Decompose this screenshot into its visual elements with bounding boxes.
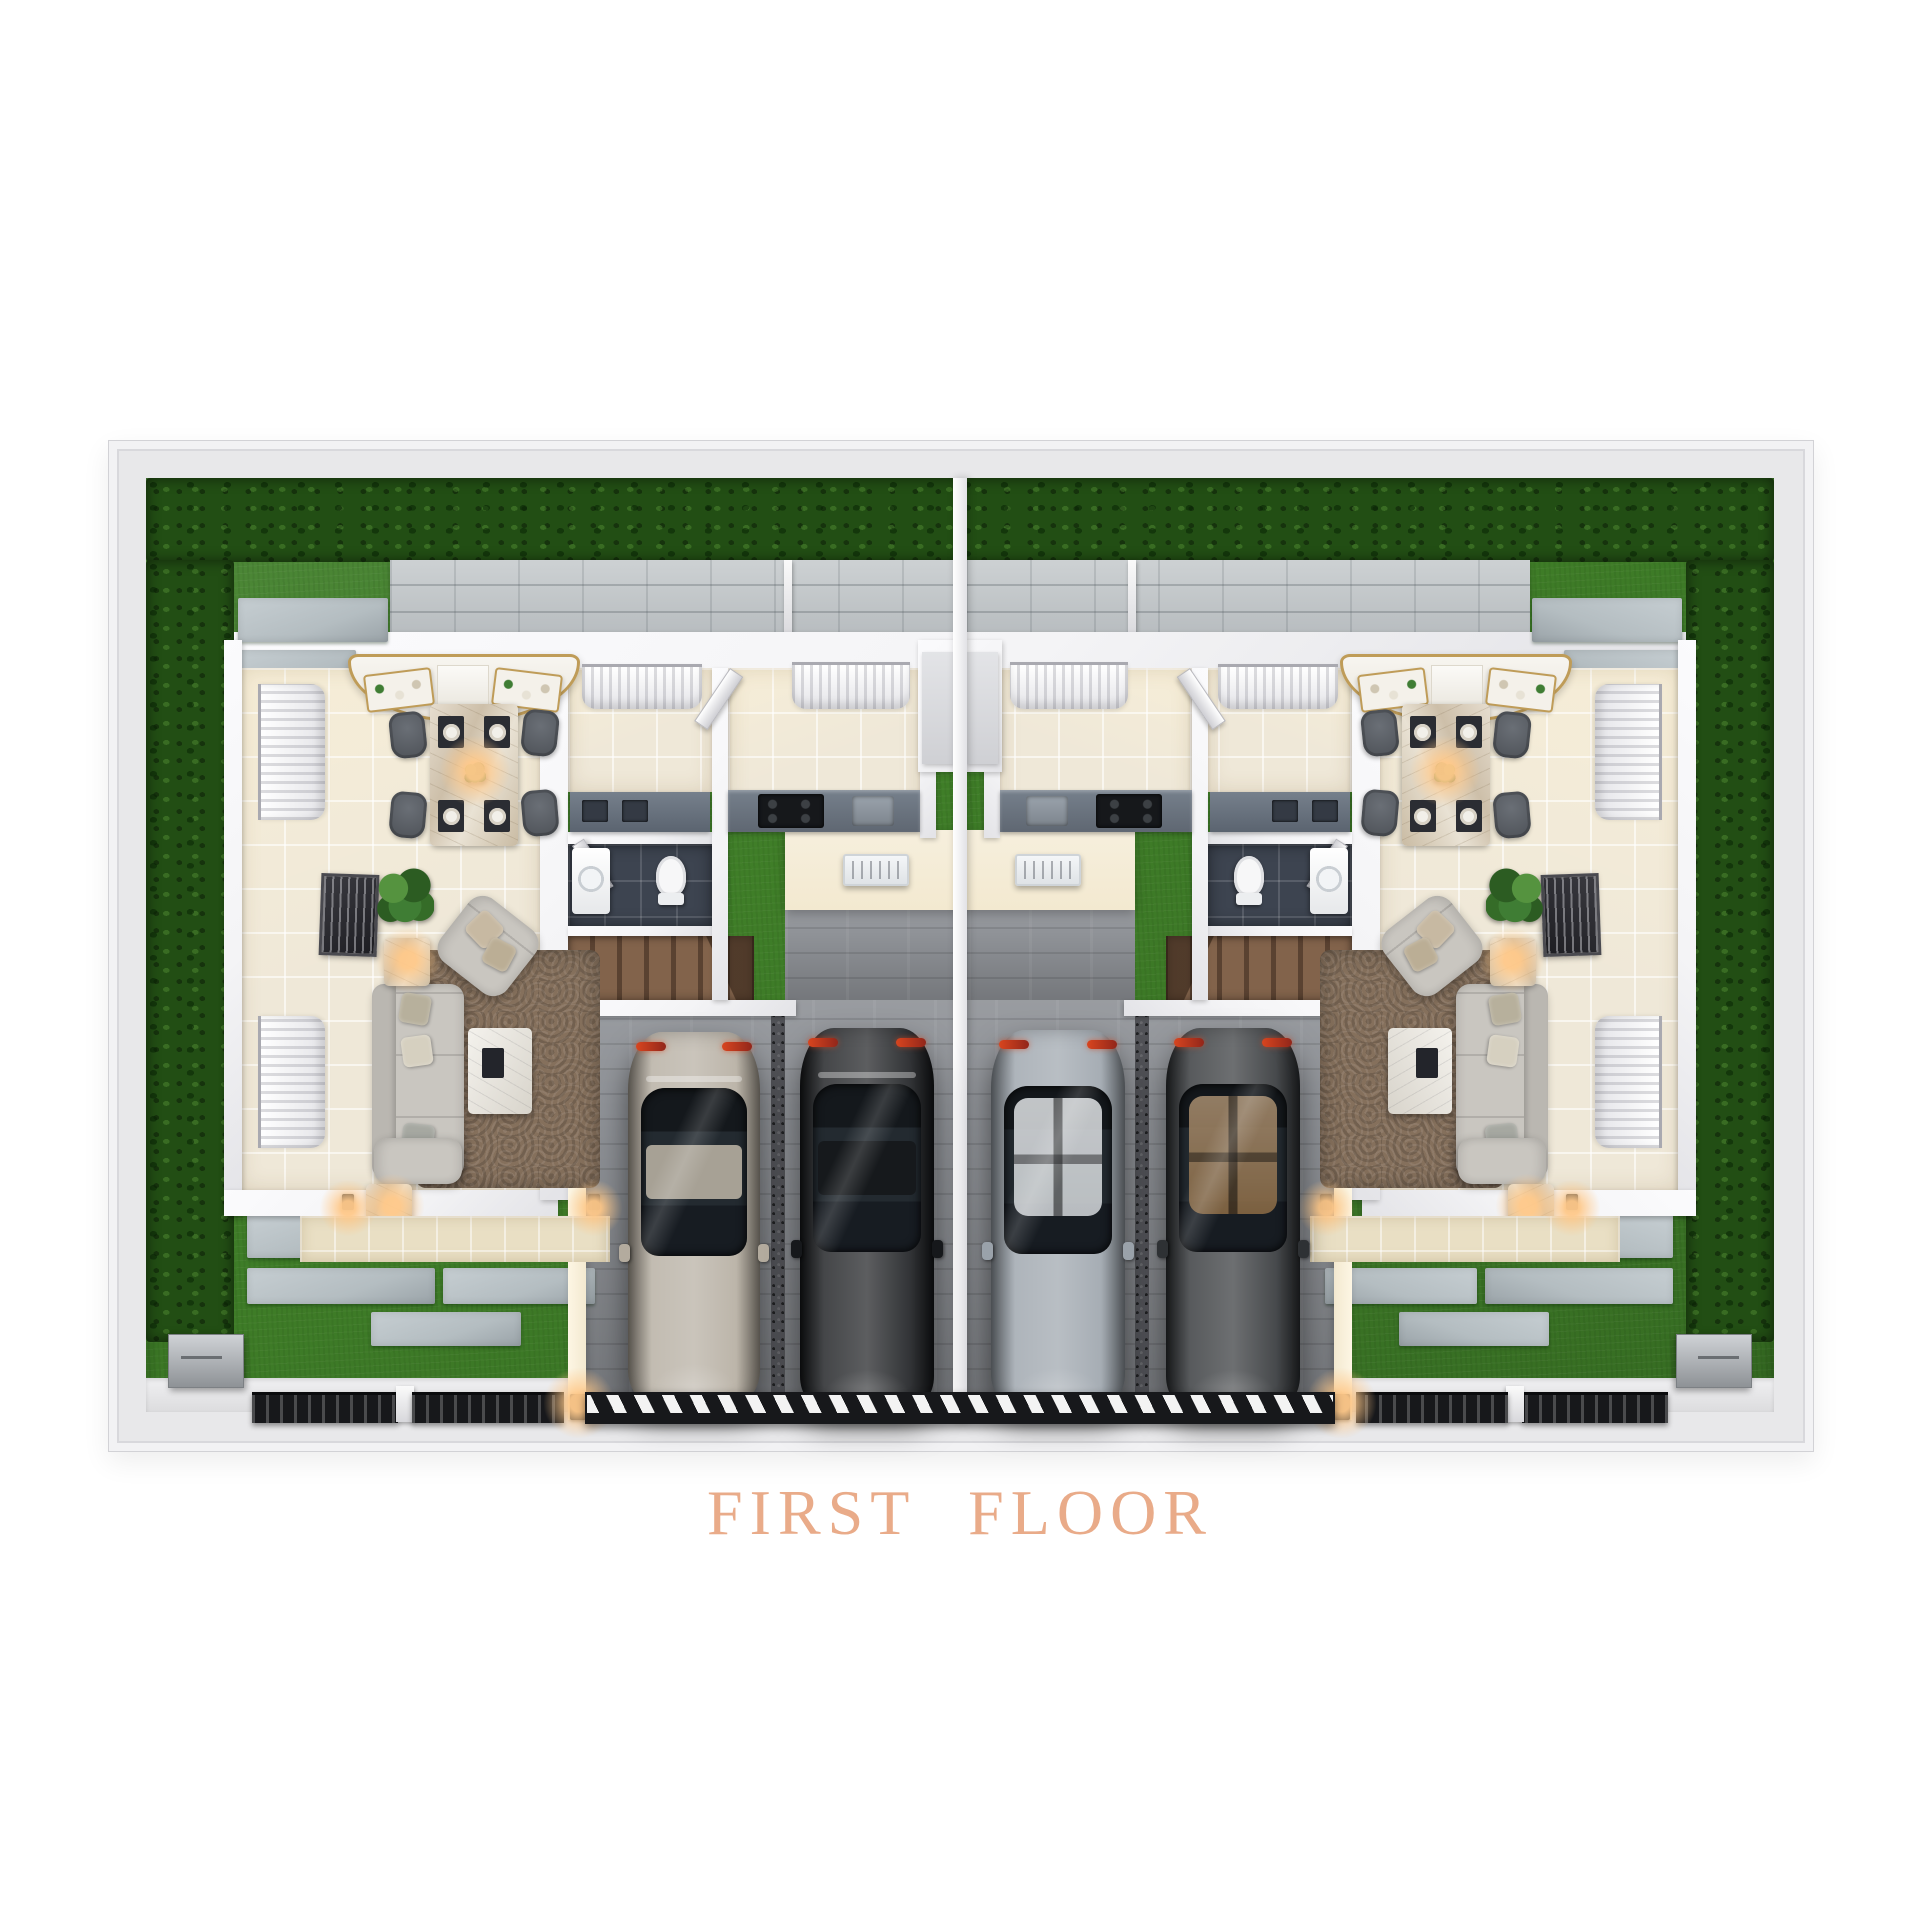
fence-post — [1506, 1386, 1524, 1422]
window-drape — [1595, 1016, 1662, 1148]
front-terrace — [1310, 1216, 1620, 1262]
place-setting — [1456, 800, 1482, 832]
pillow — [1486, 1034, 1520, 1068]
dining-chair — [1360, 708, 1401, 758]
party-wall — [953, 478, 967, 1422]
tall-cabinet — [966, 652, 998, 764]
wall-art — [1541, 873, 1602, 957]
wash-basin — [1316, 866, 1342, 892]
bathroom-vanity — [1310, 848, 1348, 914]
car-silver-gray — [991, 1030, 1125, 1408]
dining-chair — [1492, 710, 1533, 760]
kitchen-sink — [1026, 796, 1068, 826]
floor-title-text: FIRST FLOOR — [707, 1477, 1213, 1548]
front-fence — [1522, 1392, 1668, 1423]
dining-chair — [1360, 789, 1400, 838]
window-curtain — [1010, 662, 1128, 709]
place-setting — [1410, 716, 1436, 748]
front-fence — [1356, 1392, 1508, 1423]
coffee-table — [1388, 1028, 1452, 1114]
table-centerpiece — [1434, 762, 1456, 784]
wall — [1208, 926, 1352, 936]
gate-lamp — [1334, 1394, 1350, 1420]
toilet — [1234, 856, 1264, 896]
dining-table — [1402, 704, 1490, 846]
car-dark-charcoal — [1166, 1028, 1300, 1410]
sofa-chaise — [1458, 1138, 1546, 1184]
hedge-side — [1686, 560, 1774, 1342]
floor-plan-render: FIRST FLOOR — [0, 0, 1920, 1920]
appliance — [1272, 800, 1298, 822]
driveway-gate — [585, 1392, 1335, 1424]
place-setting — [1456, 716, 1482, 748]
dining-chair — [1492, 791, 1532, 840]
storage-box — [1676, 1334, 1752, 1388]
wall — [1208, 832, 1352, 844]
appliance — [1312, 800, 1338, 822]
car-black — [800, 1028, 934, 1410]
side-table — [1490, 938, 1536, 986]
wall-sconce — [1566, 1194, 1578, 1210]
floor-title: FIRST FLOOR — [0, 1476, 1920, 1550]
potted-plant — [1486, 868, 1544, 926]
gas-cooktop — [1096, 794, 1162, 828]
window-drape — [1595, 684, 1662, 820]
shelf-skylight — [1431, 665, 1483, 705]
paver-slab — [1532, 598, 1682, 642]
car-silver-beige — [628, 1032, 760, 1404]
window-curtain — [1218, 664, 1338, 709]
wall — [1678, 640, 1696, 1216]
pillow — [1488, 992, 1523, 1027]
utility-cabinet — [1210, 792, 1350, 832]
shelf-wing — [1485, 667, 1557, 713]
place-setting — [1410, 800, 1436, 832]
tall-cabinet — [922, 652, 954, 764]
wall-sconce — [1320, 1194, 1332, 1210]
table-tray — [1416, 1048, 1438, 1078]
